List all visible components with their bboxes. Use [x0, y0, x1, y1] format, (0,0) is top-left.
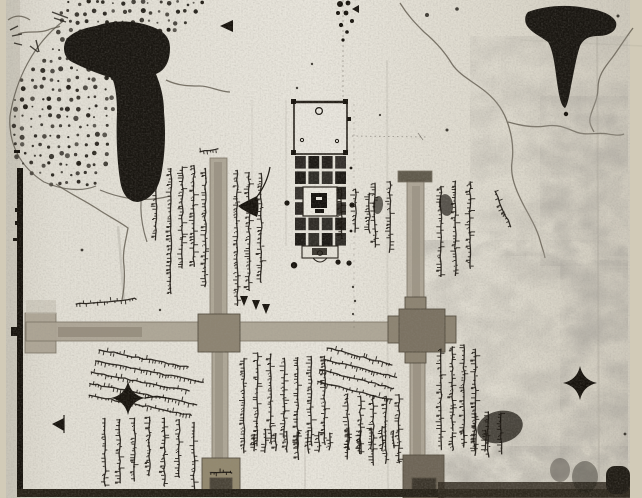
photo-grain — [6, 0, 630, 498]
page-background — [0, 0, 642, 498]
manuscript-map-photograph — [0, 0, 642, 498]
